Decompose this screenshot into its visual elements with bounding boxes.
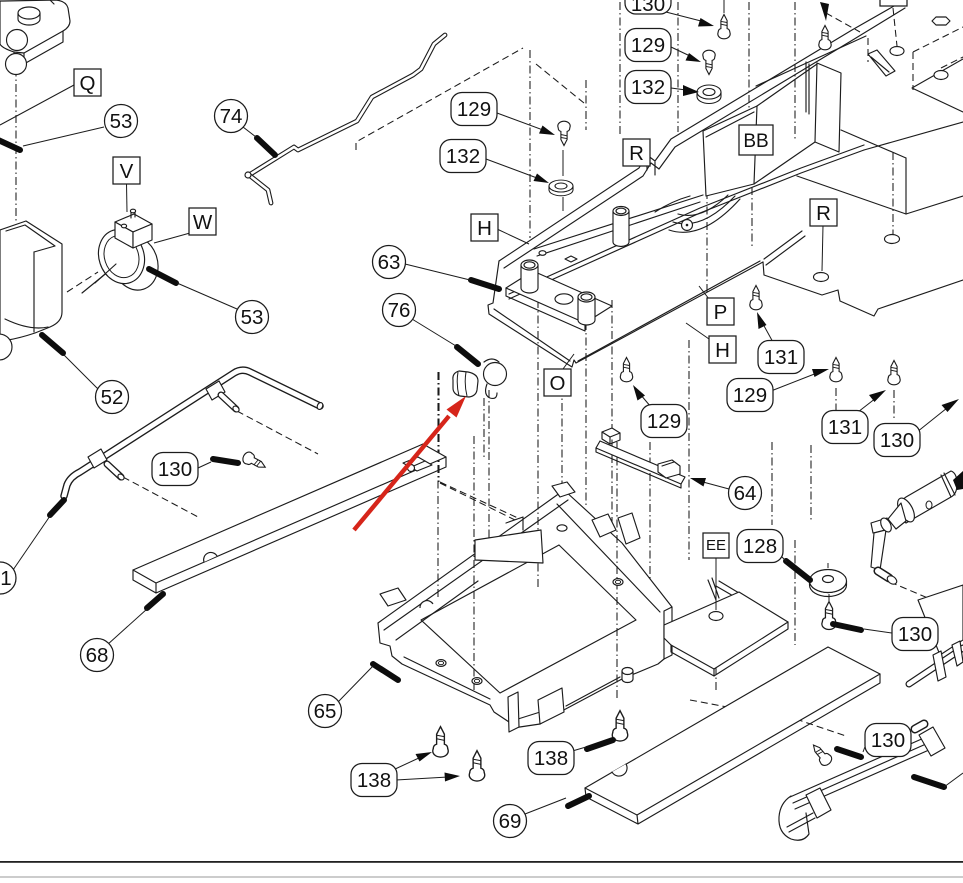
svg-text:O: O xyxy=(550,372,566,395)
svg-text:129: 129 xyxy=(631,34,665,57)
svg-text:BB: BB xyxy=(743,131,768,152)
svg-text:129: 129 xyxy=(733,384,767,407)
svg-text:H: H xyxy=(477,217,492,240)
svg-text:R: R xyxy=(816,202,831,225)
svg-text:128: 128 xyxy=(743,535,777,558)
svg-text:130: 130 xyxy=(898,623,932,646)
svg-text:130: 130 xyxy=(631,0,665,16)
svg-text:V: V xyxy=(120,160,134,183)
svg-text:130: 130 xyxy=(158,458,192,481)
svg-text:131: 131 xyxy=(764,346,798,369)
svg-text:130: 130 xyxy=(880,429,914,452)
svg-text:53: 53 xyxy=(110,110,133,133)
svg-text:68: 68 xyxy=(86,644,109,667)
svg-text:1: 1 xyxy=(0,567,11,590)
svg-text:131: 131 xyxy=(828,416,862,439)
svg-text:69: 69 xyxy=(499,810,522,833)
svg-text:Q: Q xyxy=(80,72,96,95)
svg-text:74: 74 xyxy=(220,105,243,128)
svg-text:R: R xyxy=(629,142,644,165)
svg-text:138: 138 xyxy=(357,769,391,792)
svg-text:138: 138 xyxy=(534,747,568,770)
svg-text:129: 129 xyxy=(647,410,681,433)
svg-text:65: 65 xyxy=(314,700,337,723)
svg-text:132: 132 xyxy=(631,76,665,99)
svg-text:P: P xyxy=(714,301,728,324)
svg-text:129: 129 xyxy=(457,98,491,121)
svg-text:EE: EE xyxy=(706,537,726,554)
svg-text:132: 132 xyxy=(446,145,480,168)
svg-text:76: 76 xyxy=(388,299,411,322)
svg-text:130: 130 xyxy=(871,729,905,752)
svg-text:64: 64 xyxy=(734,482,757,505)
svg-text:53: 53 xyxy=(241,306,264,329)
svg-text:63: 63 xyxy=(378,251,401,274)
svg-text:W: W xyxy=(193,211,213,234)
svg-text:H: H xyxy=(715,339,730,362)
svg-text:52: 52 xyxy=(101,386,124,409)
